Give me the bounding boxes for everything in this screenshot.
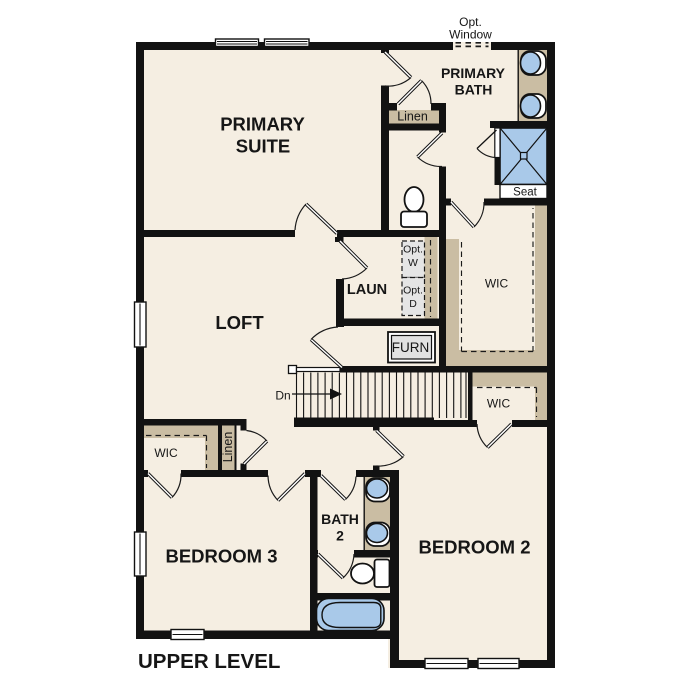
svg-text:Linen: Linen (397, 110, 428, 124)
svg-text:PRIMARY: PRIMARY (441, 65, 506, 81)
svg-text:Linen: Linen (221, 432, 235, 463)
svg-text:BEDROOM 2: BEDROOM 2 (418, 537, 530, 558)
svg-text:LOFT: LOFT (215, 312, 264, 333)
svg-text:W: W (408, 257, 418, 269)
svg-text:FURN: FURN (392, 340, 430, 355)
svg-text:WIC: WIC (154, 446, 178, 460)
svg-text:Opt.: Opt. (403, 244, 423, 256)
svg-text:UPPER LEVEL: UPPER LEVEL (138, 650, 280, 673)
svg-text:BATH: BATH (455, 82, 493, 98)
svg-text:2: 2 (336, 528, 344, 544)
svg-text:WIC: WIC (485, 277, 509, 291)
svg-text:PRIMARY: PRIMARY (220, 114, 305, 135)
svg-text:Opt.: Opt. (403, 285, 423, 297)
svg-text:Dn: Dn (275, 389, 290, 403)
svg-text:SUITE: SUITE (236, 136, 290, 157)
svg-text:BATH: BATH (321, 511, 359, 527)
svg-text:LAUN: LAUN (347, 282, 387, 298)
svg-text:BEDROOM 3: BEDROOM 3 (165, 546, 277, 567)
svg-text:Seat: Seat (513, 187, 537, 199)
svg-text:D: D (409, 298, 417, 310)
svg-text:Window: Window (449, 28, 492, 42)
svg-text:WIC: WIC (487, 397, 511, 411)
